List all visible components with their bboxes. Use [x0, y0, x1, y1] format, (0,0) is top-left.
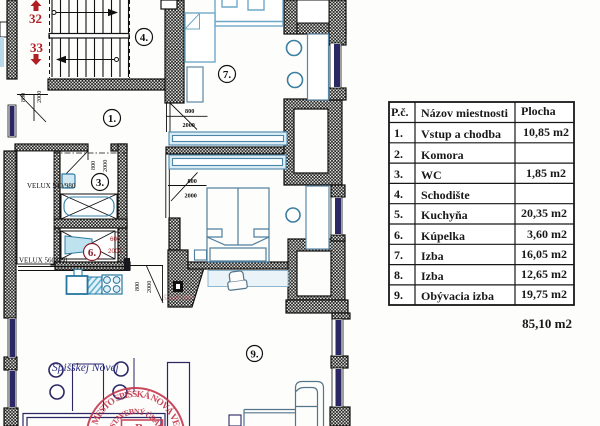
svg-text:Plocha: Plocha — [521, 104, 556, 118]
svg-text:2.: 2. — [394, 147, 403, 161]
svg-text:Izba: Izba — [421, 269, 444, 283]
svg-text:2000: 2000 — [146, 281, 153, 293]
svg-text:3,60 m2: 3,60 m2 — [527, 227, 567, 241]
svg-text:Izba: Izba — [421, 249, 444, 263]
svg-text:2000: 2000 — [36, 91, 43, 103]
svg-text:Šatník 600: Šatník 600 — [163, 294, 193, 302]
svg-text:Názov miestnosti: Názov miestnosti — [421, 106, 509, 120]
svg-text:Spišskej Novej: Spišskej Novej — [52, 362, 119, 374]
svg-text:33: 33 — [30, 40, 44, 55]
svg-text:800: 800 — [185, 108, 194, 115]
svg-text:20,35 m2: 20,35 m2 — [521, 206, 567, 220]
svg-text:32: 32 — [29, 11, 42, 26]
svg-text:800: 800 — [188, 178, 197, 185]
svg-text:Kúpelka: Kúpelka — [421, 229, 465, 243]
svg-text:12,65 m2: 12,65 m2 — [521, 267, 567, 281]
svg-text:B: B — [135, 421, 143, 426]
svg-text:1,85 m2: 1,85 m2 — [526, 166, 566, 180]
svg-text:2000: 2000 — [185, 193, 197, 200]
svg-text:Obývacia izba: Obývacia izba — [421, 289, 494, 303]
svg-text:3.: 3. — [96, 177, 105, 189]
svg-text:1.: 1. — [108, 113, 117, 125]
svg-text:4.: 4. — [394, 187, 403, 201]
svg-text:7.: 7. — [223, 69, 232, 81]
svg-text:P.č.: P.č. — [391, 105, 409, 119]
svg-text:VELUX 540/980: VELUX 540/980 — [27, 182, 76, 190]
svg-text:7.: 7. — [394, 248, 403, 262]
svg-text:800: 800 — [90, 161, 97, 170]
svg-text:10,85 m2: 10,85 m2 — [523, 125, 569, 139]
svg-text:19,75 m2: 19,75 m2 — [521, 287, 567, 301]
svg-text:800: 800 — [134, 282, 141, 291]
svg-text:8.: 8. — [394, 268, 403, 282]
svg-text:Schodište: Schodište — [421, 188, 470, 202]
svg-text:Kuchyňa: Kuchyňa — [421, 208, 468, 222]
svg-text:9.: 9. — [250, 349, 259, 361]
svg-text:85,10 m2: 85,10 m2 — [522, 316, 572, 331]
svg-text:2000: 2000 — [108, 248, 122, 255]
svg-text:1.: 1. — [394, 126, 403, 140]
svg-text:6.: 6. — [88, 247, 97, 259]
svg-text:9.: 9. — [394, 288, 403, 302]
svg-text:600: 600 — [110, 236, 121, 243]
svg-text:WC: WC — [421, 168, 442, 182]
svg-text:800: 800 — [20, 93, 27, 102]
svg-text:4.: 4. — [140, 32, 149, 44]
svg-text:VELUX 560/980: VELUX 560/980 — [19, 257, 68, 265]
svg-text:3.: 3. — [394, 167, 403, 181]
svg-text:2000: 2000 — [102, 160, 109, 172]
svg-text:5.: 5. — [394, 207, 403, 221]
svg-text:6.: 6. — [394, 228, 403, 242]
svg-text:2000: 2000 — [183, 122, 195, 129]
svg-text:Komora: Komora — [421, 148, 464, 162]
svg-text:16,05 m2: 16,05 m2 — [521, 247, 567, 261]
svg-text:Vstup a chodba: Vstup a chodba — [421, 127, 501, 141]
